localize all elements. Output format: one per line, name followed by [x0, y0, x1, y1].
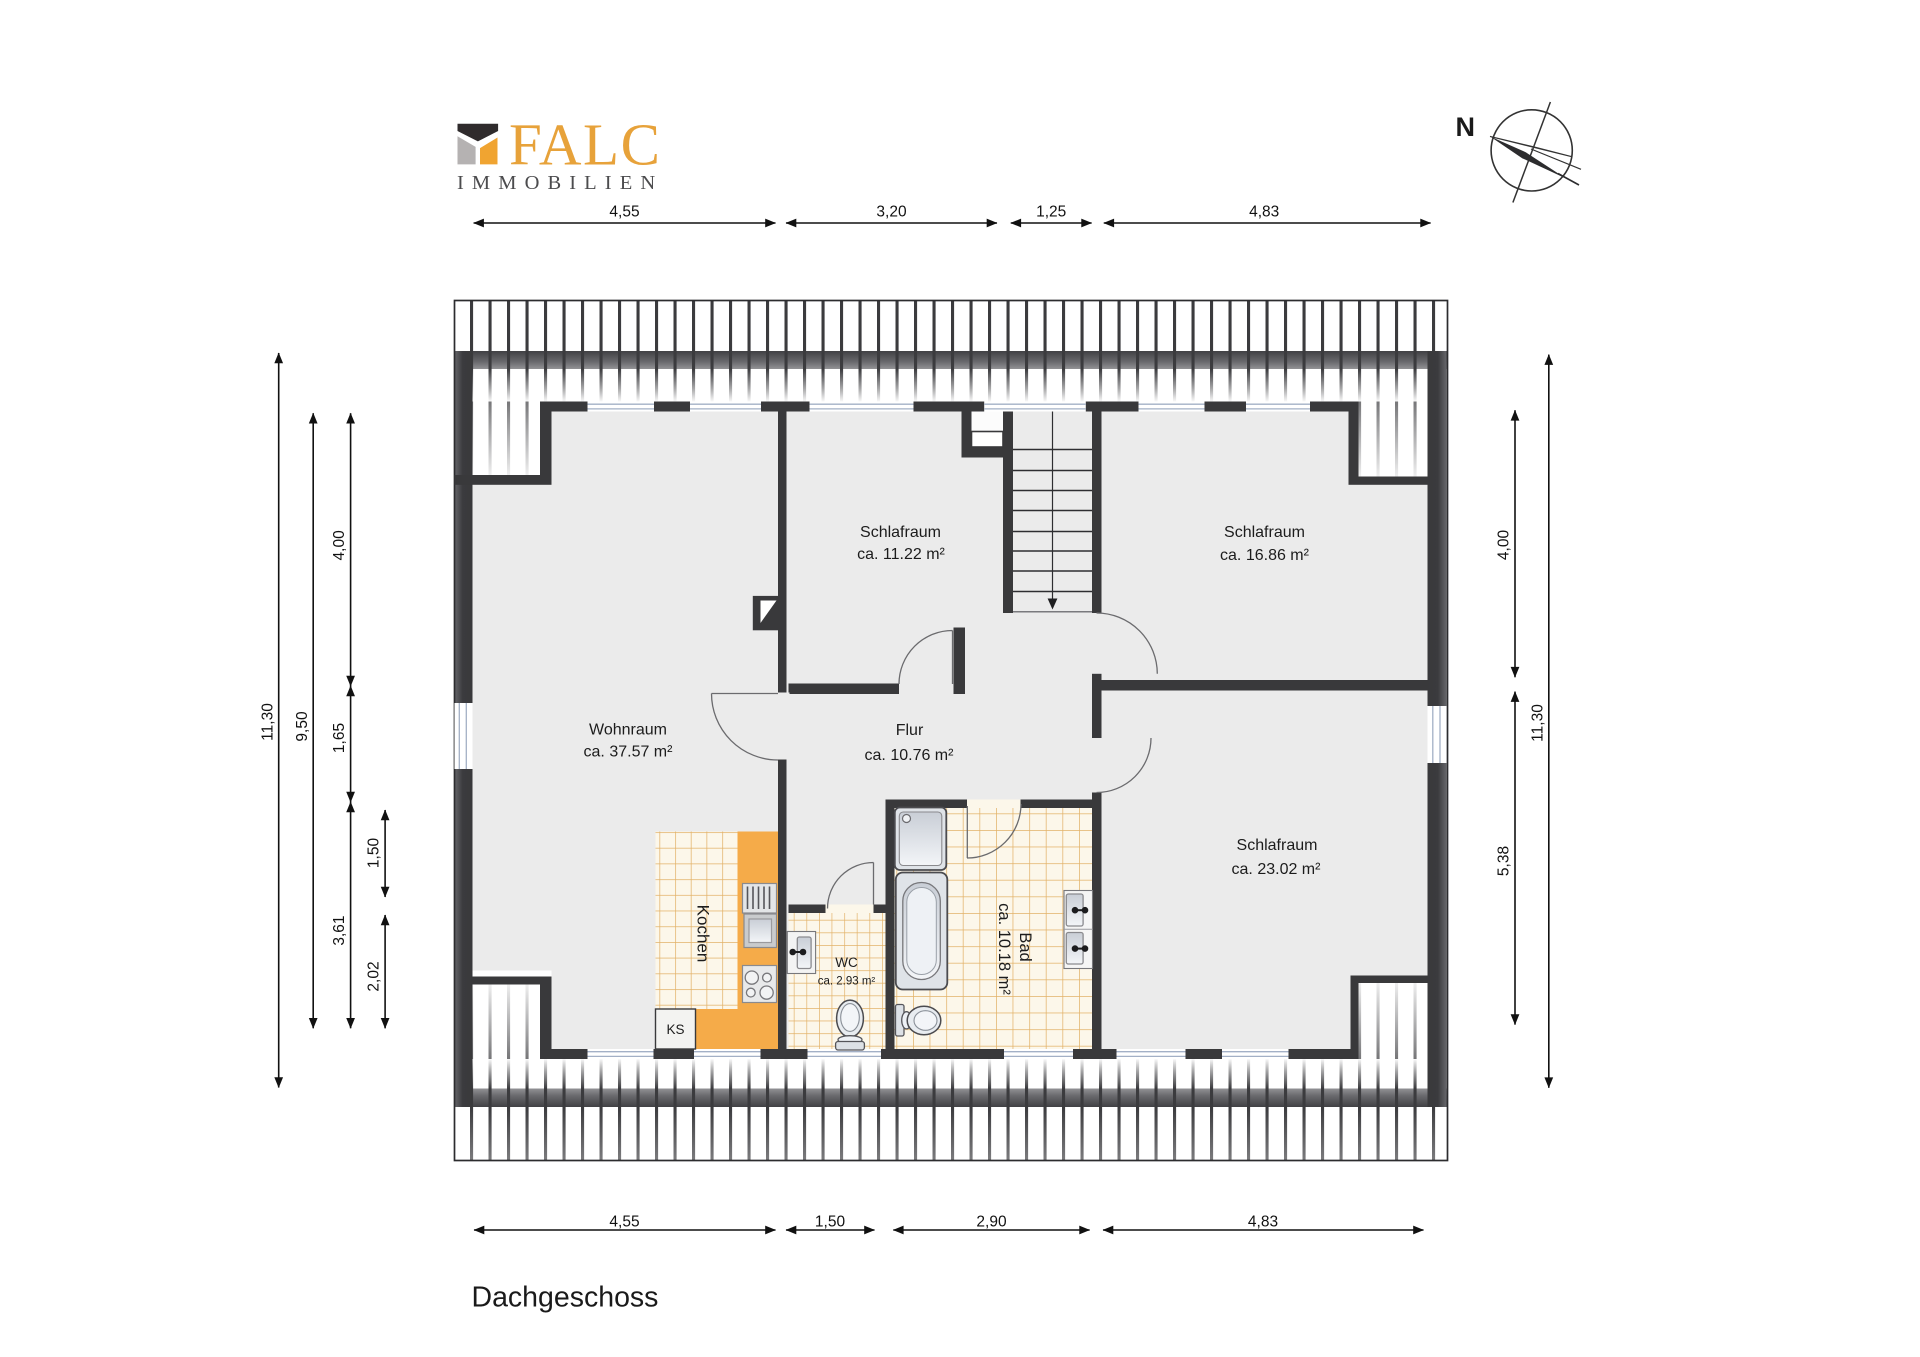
svg-text:IMMOBILIEN: IMMOBILIEN [457, 172, 663, 194]
svg-text:2,02: 2,02 [366, 961, 383, 991]
svg-text:KS: KS [666, 1022, 684, 1037]
svg-text:3,61: 3,61 [331, 916, 348, 946]
svg-text:N: N [1456, 112, 1476, 142]
svg-text:4,55: 4,55 [609, 204, 639, 221]
svg-text:4,55: 4,55 [609, 1214, 639, 1231]
svg-text:ca. 2.93 m²: ca. 2.93 m² [818, 976, 876, 988]
svg-text:Wohnraum: Wohnraum [589, 722, 667, 739]
svg-text:Schlafraum: Schlafraum [1237, 837, 1318, 854]
svg-text:ca. 23.02 m²: ca. 23.02 m² [1232, 861, 1322, 878]
svg-text:3,20: 3,20 [876, 204, 907, 221]
svg-text:ca. 10.76 m²: ca. 10.76 m² [865, 747, 955, 764]
svg-text:Schlafraum: Schlafraum [860, 524, 941, 541]
svg-text:5,38: 5,38 [1496, 846, 1513, 876]
svg-text:1,50: 1,50 [815, 1214, 846, 1231]
svg-text:FALC: FALC [509, 112, 661, 178]
svg-text:11,30: 11,30 [1529, 704, 1546, 742]
svg-text:ca. 10.18 m²: ca. 10.18 m² [995, 903, 1013, 995]
svg-text:Flur: Flur [896, 722, 924, 739]
svg-text:Kochen: Kochen [693, 905, 712, 963]
svg-text:9,50: 9,50 [294, 711, 311, 742]
svg-text:11,30: 11,30 [259, 703, 276, 741]
svg-text:WC: WC [835, 955, 858, 970]
svg-text:1,65: 1,65 [331, 723, 348, 753]
svg-text:ca. 11.22 m²: ca. 11.22 m² [857, 546, 945, 563]
svg-text:4,00: 4,00 [331, 530, 348, 561]
svg-text:4,83: 4,83 [1249, 204, 1279, 221]
svg-text:Bad: Bad [1016, 932, 1034, 961]
svg-text:1,50: 1,50 [366, 838, 383, 869]
svg-text:1,25: 1,25 [1036, 204, 1066, 221]
svg-text:2,90: 2,90 [976, 1214, 1007, 1231]
svg-text:Schlafraum: Schlafraum [1224, 524, 1305, 541]
svg-text:ca. 16.86 m²: ca. 16.86 m² [1220, 547, 1310, 564]
svg-text:4,00: 4,00 [1496, 530, 1513, 561]
svg-text:4,83: 4,83 [1248, 1214, 1278, 1231]
svg-text:ca. 37.57 m²: ca. 37.57 m² [584, 744, 674, 761]
svg-text:Dachgeschoss: Dachgeschoss [472, 1282, 659, 1314]
